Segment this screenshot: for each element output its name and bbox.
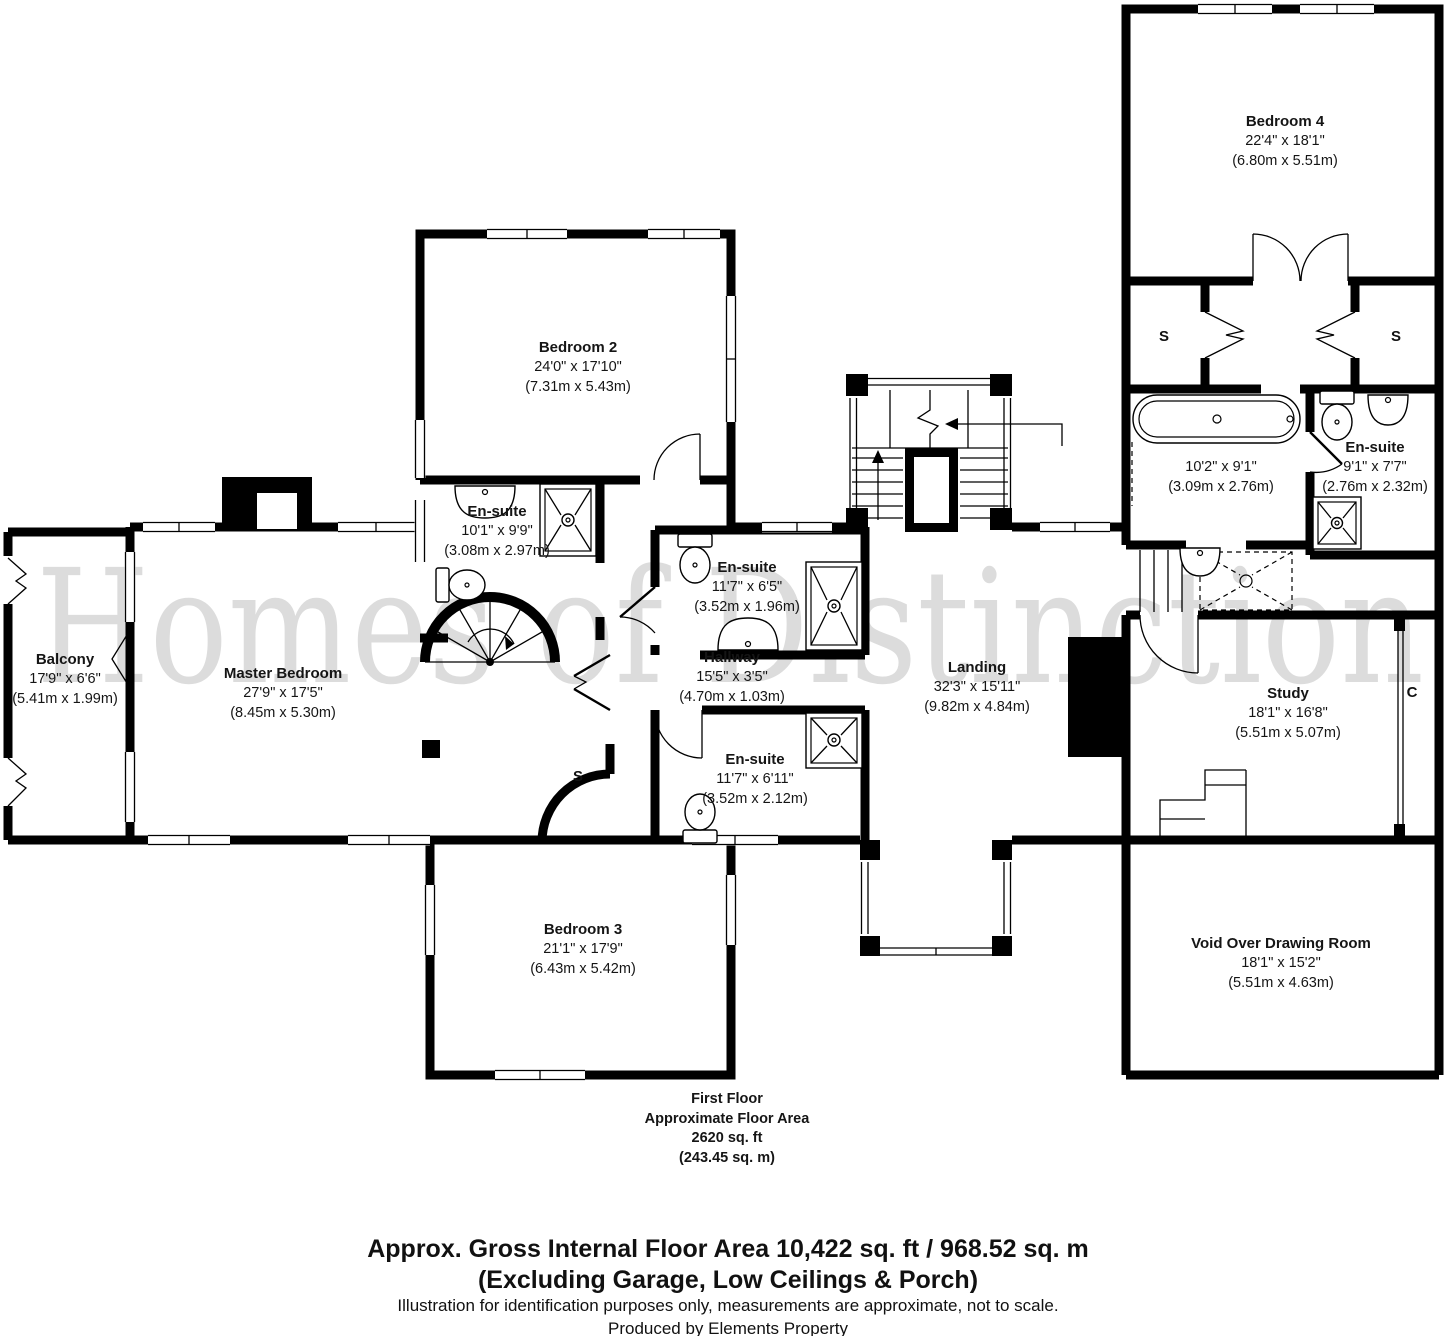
main-staircase: [846, 374, 1062, 532]
room-label-ensuite-a: En-suite 11'7" x 6'5" (3.52m x 1.96m): [694, 558, 800, 618]
shower-icon: [1313, 497, 1361, 549]
floor-summary: First Floor Approximate Floor Area 2620 …: [645, 1090, 810, 1169]
shower-icon: [806, 713, 862, 768]
bathtub-icon: [1133, 395, 1300, 443]
exclusions-text: (Excluding Garage, Low Ceilings & Porch): [0, 1265, 1456, 1296]
room-label-ensuite-master: En-suite 10'1" x 9'9" (3.08m x 2.97m): [444, 502, 550, 562]
room-label-bedroom-4: Bedroom 4 22'4" x 18'1" (6.80m x 5.51m): [1232, 112, 1338, 172]
room-label-bedroom-2: Bedroom 2 24'0" x 17'10" (7.31m x 5.43m): [525, 338, 631, 398]
bay-window: [860, 840, 1012, 956]
floorplan-page: Homes of Distinction: [0, 0, 1456, 1336]
sink-icon: [1368, 395, 1408, 425]
storage-marker: S: [1159, 328, 1169, 345]
room-label-study: Study 18'1" x 16'8" (5.51m x 5.07m): [1235, 684, 1341, 744]
landing-pillar: [1068, 637, 1126, 757]
cupboard-marker: C: [1407, 684, 1418, 701]
room-label-hallway: Hallway 15'5" x 3'5" (4.70m x 1.03m): [679, 648, 785, 708]
footer: Approx. Gross Internal Floor Area 10,422…: [0, 1234, 1456, 1336]
storage-marker: S: [573, 768, 583, 785]
toilet-icon: [1320, 391, 1354, 440]
room-label-landing: Landing 32'3" x 15'11" (9.82m x 4.84m): [924, 658, 1030, 718]
storage-marker: S: [1391, 328, 1401, 345]
room-label-balcony: Balcony 17'9" x 6'6" (5.41m x 1.99m): [12, 650, 118, 710]
producer-text: Produced by Elements Property: [0, 1318, 1456, 1336]
toilet-icon: [436, 568, 485, 602]
room-label-void: Void Over Drawing Room 18'1" x 15'2" (5.…: [1191, 934, 1371, 994]
room-label-ensuite-right: En-suite 9'1" x 7'7" (2.76m x 2.32m): [1322, 438, 1428, 498]
room-label-ensuite-b: En-suite 11'7" x 6'11" (3.52m x 2.12m): [702, 750, 808, 810]
room-label-master-bedroom: Master Bedroom 27'9" x 17'5" (8.45m x 5.…: [224, 664, 342, 724]
gross-area-text: Approx. Gross Internal Floor Area 10,422…: [0, 1234, 1456, 1265]
room-label-bedroom-3: Bedroom 3 21'1" x 17'9" (6.43m x 5.42m): [530, 920, 636, 980]
post: [422, 740, 440, 758]
room-label-bathroom: 10'2" x 9'1" (3.09m x 2.76m): [1168, 458, 1274, 497]
disclaimer-text: Illustration for identification purposes…: [0, 1295, 1456, 1318]
shower-icon: [806, 562, 862, 650]
